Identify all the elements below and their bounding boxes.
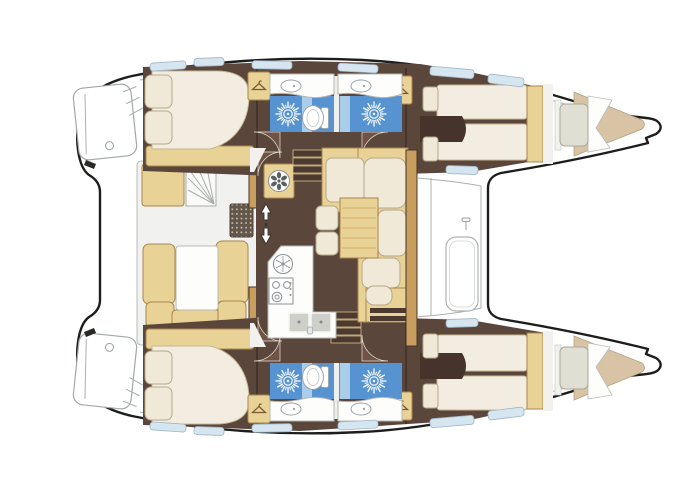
port-bow-pillow	[560, 104, 588, 146]
nav-seat	[366, 286, 392, 305]
cockpit-bench-right	[216, 241, 248, 303]
starboard-swim-platform	[72, 332, 137, 410]
washbasin-icon	[281, 403, 301, 415]
nav-instrument-bar-1	[370, 308, 406, 313]
nav-instrument-bar-2	[370, 316, 406, 321]
settee-cushion-2	[378, 210, 406, 256]
washbasin-icon	[351, 80, 371, 92]
port-swim-platform	[72, 83, 137, 161]
stool-1	[316, 206, 338, 230]
starboard-bow-pillow	[560, 347, 588, 389]
starboard-fwd-berth-2	[437, 376, 527, 410]
stool-2	[316, 232, 338, 255]
stove-icon	[269, 278, 293, 304]
starboard-aft-cabin	[145, 329, 254, 424]
boat-floor-plan	[0, 0, 700, 495]
cockpit-table	[176, 246, 218, 310]
nav-station	[366, 286, 408, 322]
settee-cushion-3	[362, 258, 400, 288]
starboard-fwd-headboard	[527, 333, 543, 409]
port-bow-bulkhead	[543, 84, 553, 164]
starboard-fwd-pillow-1	[423, 334, 438, 358]
fan-hatch-icon	[269, 171, 290, 192]
starboard-fwd-shower-tray	[340, 363, 350, 399]
port-aft-pillow-1	[145, 75, 172, 108]
port-fwd-shower-tray	[340, 96, 350, 132]
port-aft-pillow-2	[145, 111, 172, 144]
port-fwd-pillow-1	[423, 87, 438, 111]
starboard-forward-cabin	[420, 331, 553, 411]
toilet-icon	[303, 365, 329, 390]
port-fwd-headboard	[527, 86, 543, 162]
starboard-aft-wardrobe	[248, 395, 270, 423]
starboard-aft-pillow-2	[145, 387, 172, 420]
starboard-aft-pillow-1	[145, 351, 172, 384]
settee-cushion-1	[326, 158, 364, 202]
hotplate-icon	[274, 255, 293, 274]
toilet-icon	[303, 106, 329, 131]
aft-cockpit	[137, 161, 257, 345]
salon-front-wall	[406, 150, 417, 346]
salon-table	[340, 198, 378, 258]
washbasin-icon	[351, 403, 371, 415]
deck-grate-icon	[230, 204, 253, 237]
foredeck-hatch	[446, 237, 478, 311]
boat-floor-plan-canvas	[0, 0, 700, 495]
cockpit-bench-left	[143, 244, 175, 304]
starboard-fwd-pillow-2	[423, 384, 438, 408]
port-aft-wardrobe	[248, 72, 270, 100]
port-fwd-berth-1	[437, 85, 527, 119]
port-aft-cabin	[145, 71, 254, 166]
port-forward-cabin	[420, 84, 553, 164]
port-fwd-pillow-2	[423, 137, 438, 161]
washbasin-icon	[281, 80, 301, 92]
starboard-bow-bulkhead	[543, 331, 553, 411]
